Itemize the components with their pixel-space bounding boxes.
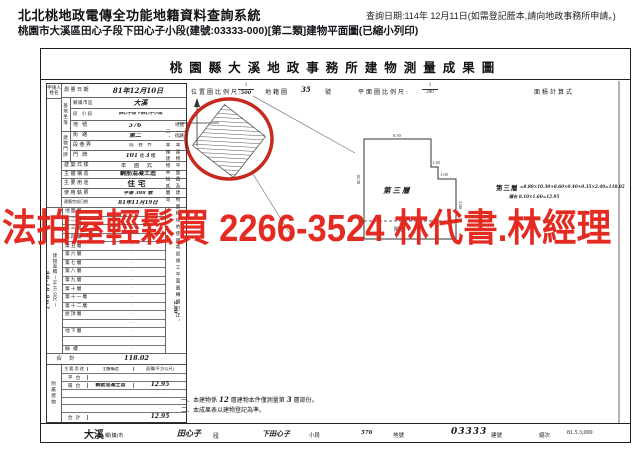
- floor-row: 屋頂層·: [63, 311, 165, 320]
- footer-township: 大溪: [84, 426, 104, 441]
- bottom-note-1: 一、本建物係12層建物本件僅測量第3層部份。: [181, 395, 318, 404]
- section-value: 田心子段下田心子小段: [95, 112, 186, 117]
- site-group-label: 基地坐落: [62, 98, 71, 131]
- footer-section: 田心子: [177, 428, 201, 439]
- floor-row: ·: [63, 337, 165, 346]
- document-subtitle: 桃園市大溪區田心子段下田心子小段(建號:03333-000)[第二類]建物平面圖…: [18, 23, 418, 38]
- sheet-title: 桃園縣大溪地政事務所建物測量成果圖: [170, 57, 502, 76]
- cadastral-map-unit: 號: [325, 87, 333, 96]
- location-scale-label: 位置圖比例尺:: [191, 87, 243, 96]
- applicant-column: 申請人 姓名: [47, 84, 62, 207]
- floor-row: 地下層·: [63, 328, 165, 337]
- dim-step2: 1.00: [440, 172, 448, 177]
- total-area-value: 118.02: [87, 355, 186, 362]
- footer-parcel-no: 576: [361, 430, 372, 436]
- note-measured-floor: 3: [285, 395, 294, 404]
- title-divider: [41, 79, 630, 80]
- annex-total-value: 12.95: [134, 414, 186, 421]
- note-floors-count: 12: [217, 395, 231, 404]
- floor-row: 第九層·: [63, 277, 165, 286]
- address-group-label: 建物門牌: [62, 132, 71, 161]
- red-circle-marker: [186, 99, 272, 179]
- floor-row: 第六層·: [63, 251, 165, 260]
- floor-row: 第七層·: [63, 260, 165, 269]
- land-registry-query-page: 北北桃地政電傳全功能地籍資料查詢系統 查詢日期:114年 12月11日(如需登記…: [0, 0, 640, 451]
- location-scale-denominator: 500: [241, 90, 251, 96]
- vertical-scribble: 2.00: [172, 301, 178, 313]
- floor-row: 第八層·: [63, 268, 165, 277]
- red-watermark-text: 法拍屋輕鬆買 2266-3524 林代書.林經理: [2, 197, 611, 252]
- total-area-row: 合 計 118.02: [47, 354, 186, 365]
- cadastral-map-number: 35: [301, 85, 311, 94]
- query-date-note: 查詢日期:114年 12月11日(如需登記謄本,請向地政事務所申請。): [366, 9, 616, 22]
- calc-floor-title: 第三層: [496, 182, 519, 192]
- survey-date-label: 測量日期: [62, 88, 90, 94]
- annex-row: ·: [62, 405, 186, 413]
- plan-scale-numerator: 1: [422, 83, 438, 90]
- annex-building-section: 附屬建物 主要用途 主體構造 面積(平方公尺) 平 台 · 陽 台 鋼筋混凝土: [47, 365, 186, 422]
- footer-strip: 大溪 鄉(鎮)市 田心子 段 下田心子 小段 576 地號 03333 建號 縮…: [41, 423, 630, 442]
- dim-top: 8.50: [393, 133, 401, 138]
- annex-total-row: 合 計 12.95: [62, 413, 186, 422]
- dim-step1: 1.40: [432, 160, 440, 165]
- survey-date-value: 81年12月10日: [90, 87, 186, 95]
- annex-row: 陽 台 鋼筋混凝土造 12.95: [62, 382, 186, 391]
- floor-row: 騎 樓·: [63, 346, 165, 354]
- district-value: 大溪: [95, 99, 186, 107]
- plan-scale-fraction: 1 200: [422, 83, 438, 96]
- floor-plan-label: 第三層: [383, 185, 412, 196]
- plan-scale-denominator: 200: [426, 90, 434, 95]
- section-row: 段 小段 田心子段下田心子小段: [71, 109, 186, 121]
- location-scale-numerator: 1: [238, 83, 254, 90]
- footer-building-no: 03333: [451, 427, 487, 437]
- applicant-label: 申請人 姓名: [47, 84, 61, 99]
- margin-scribble: 90-10 9m2: [44, 271, 50, 310]
- floor-row: ·: [63, 320, 165, 329]
- district-row: 鄉鎮市區 大溪: [71, 98, 186, 110]
- system-title: 北北桃地政電傳全功能地籍資料查詢系統: [18, 5, 261, 24]
- bottom-note-2: 二、本成果表以建物登記為準。: [181, 405, 265, 414]
- plan-scale-label: 平面圖比例尺:: [358, 87, 410, 96]
- annex-row: ·: [62, 390, 186, 398]
- floor-row: 第十層·: [63, 285, 165, 294]
- annex-row: ·: [62, 398, 186, 406]
- footer-subsection: 下田心子: [262, 429, 290, 439]
- survey-date-row: 測量日期 81年12月10日: [62, 84, 186, 98]
- annex-side-label: 附屬建物: [47, 365, 62, 422]
- cadastral-map-label: 地籍圖: [265, 87, 289, 96]
- area-calc-label: 面積計算式: [534, 87, 574, 96]
- site-location-group: 基地坐落 鄉鎮市區 大溪 段 小段 田心子段下田心子小段 地 號: [62, 98, 186, 132]
- annex-header-row: 主要用途 主體構造 面積(平方公尺): [62, 365, 186, 374]
- footer-edition: 81.5.3,000: [567, 430, 593, 436]
- floor-row: 第十二層·: [63, 303, 165, 312]
- location-scale-fraction: 1 500: [238, 83, 254, 97]
- dim-left: 10.30: [356, 174, 361, 184]
- calc-line-1: =8.80×10.30+8.60×0.40+0.35×2.40=118.02: [520, 184, 625, 189]
- floor-row: 第十一層·: [63, 294, 165, 303]
